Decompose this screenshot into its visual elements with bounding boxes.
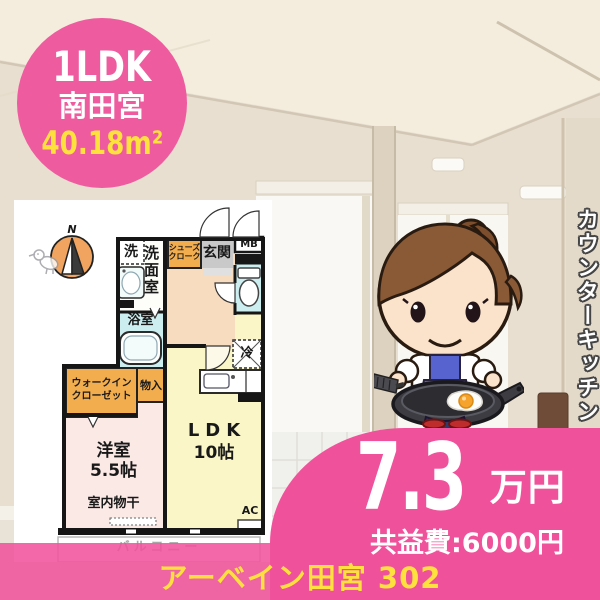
right-hand <box>485 372 501 388</box>
curtain-rail-left <box>256 181 374 194</box>
apron-bib <box>430 355 460 381</box>
label-laundry: 洗 <box>118 245 144 261</box>
compass <box>51 236 93 278</box>
layout-type: 1LDK <box>53 46 152 88</box>
property-badge: 1LDK 南田宮 40.18m² <box>17 18 187 188</box>
label-fridge: 冷 <box>233 347 261 362</box>
drying-rail <box>110 518 156 525</box>
label-bathroom: 浴室 <box>116 314 165 329</box>
floorplan-panel: N 洗 洗面室 シューズ クローク 玄関 MB 浴室 冷 ウォークイン クローゼ… <box>14 200 272 562</box>
price-block: 7.3 万円 共益費:6000円 <box>356 438 596 560</box>
property-name: アーベイン田宮 302 <box>0 555 600 597</box>
label-indoor-drying: 室内物干 <box>62 497 165 512</box>
label-meter-box: MB <box>235 239 263 250</box>
label-ldk: LDK <box>165 421 263 441</box>
floor-area: 40.18m² <box>41 127 163 161</box>
label-entrance: 玄関 <box>201 246 233 262</box>
location-name: 南田宮 <box>58 91 145 123</box>
rent-unit: 万円 <box>490 457 566 511</box>
label-ldk-size: 10帖 <box>165 444 263 463</box>
ceiling-light <box>432 158 464 171</box>
feature-caption: カウンターキッチン <box>553 208 597 424</box>
mascot-character <box>374 208 524 430</box>
property-listing-card: 1LDK 南田宮 40.18m² <box>0 0 600 600</box>
label-wic-1: ウォークイン <box>66 378 137 389</box>
rent-amount: 7.3 <box>356 438 465 517</box>
toilet <box>238 268 260 278</box>
label-washroom: 洗面室 <box>143 245 158 296</box>
ceiling-light-2 <box>520 186 566 199</box>
label-western-room-size: 5.5帖 <box>62 462 165 481</box>
label-storage: 物入 <box>137 380 165 392</box>
label-wic-2: クローゼット <box>66 391 137 402</box>
label-ac: AC <box>236 505 264 517</box>
label-western-room: 洋室 <box>62 442 165 461</box>
entrance-door-arc <box>200 208 229 237</box>
compass-north-label: N <box>64 224 80 236</box>
label-shoe-closet-2: クローク <box>168 253 201 262</box>
